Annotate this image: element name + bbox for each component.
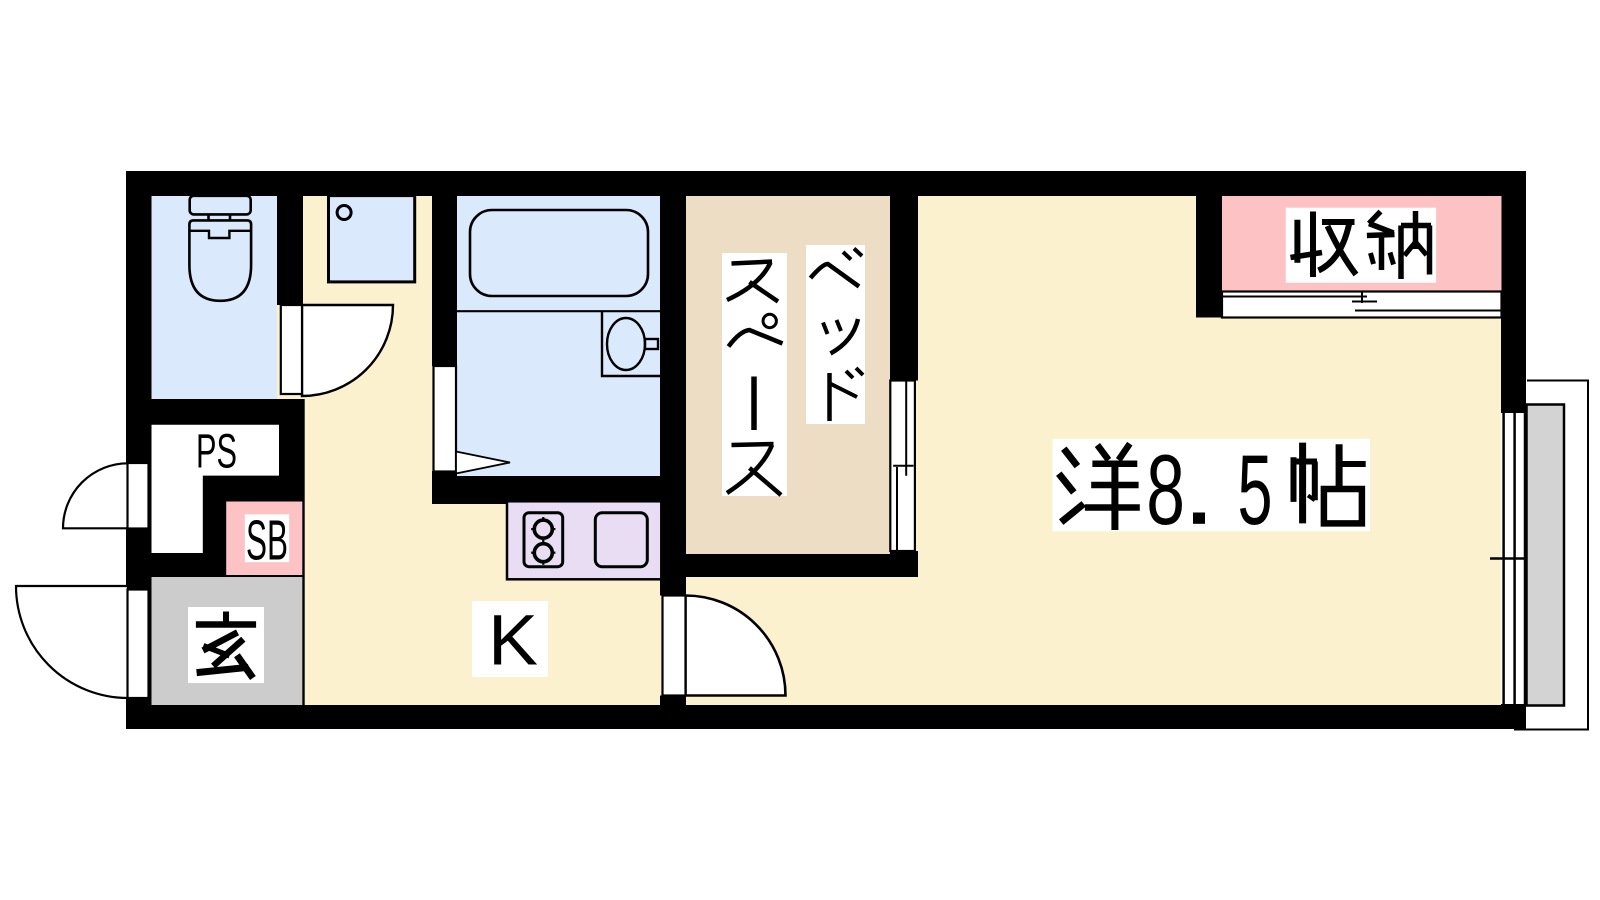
svg-text:PS: PS bbox=[196, 426, 237, 479]
svg-text:K: K bbox=[488, 602, 538, 681]
svg-text:8: 8 bbox=[1146, 434, 1185, 545]
svg-text:5: 5 bbox=[1238, 434, 1273, 545]
svg-text:SB: SB bbox=[246, 509, 288, 573]
